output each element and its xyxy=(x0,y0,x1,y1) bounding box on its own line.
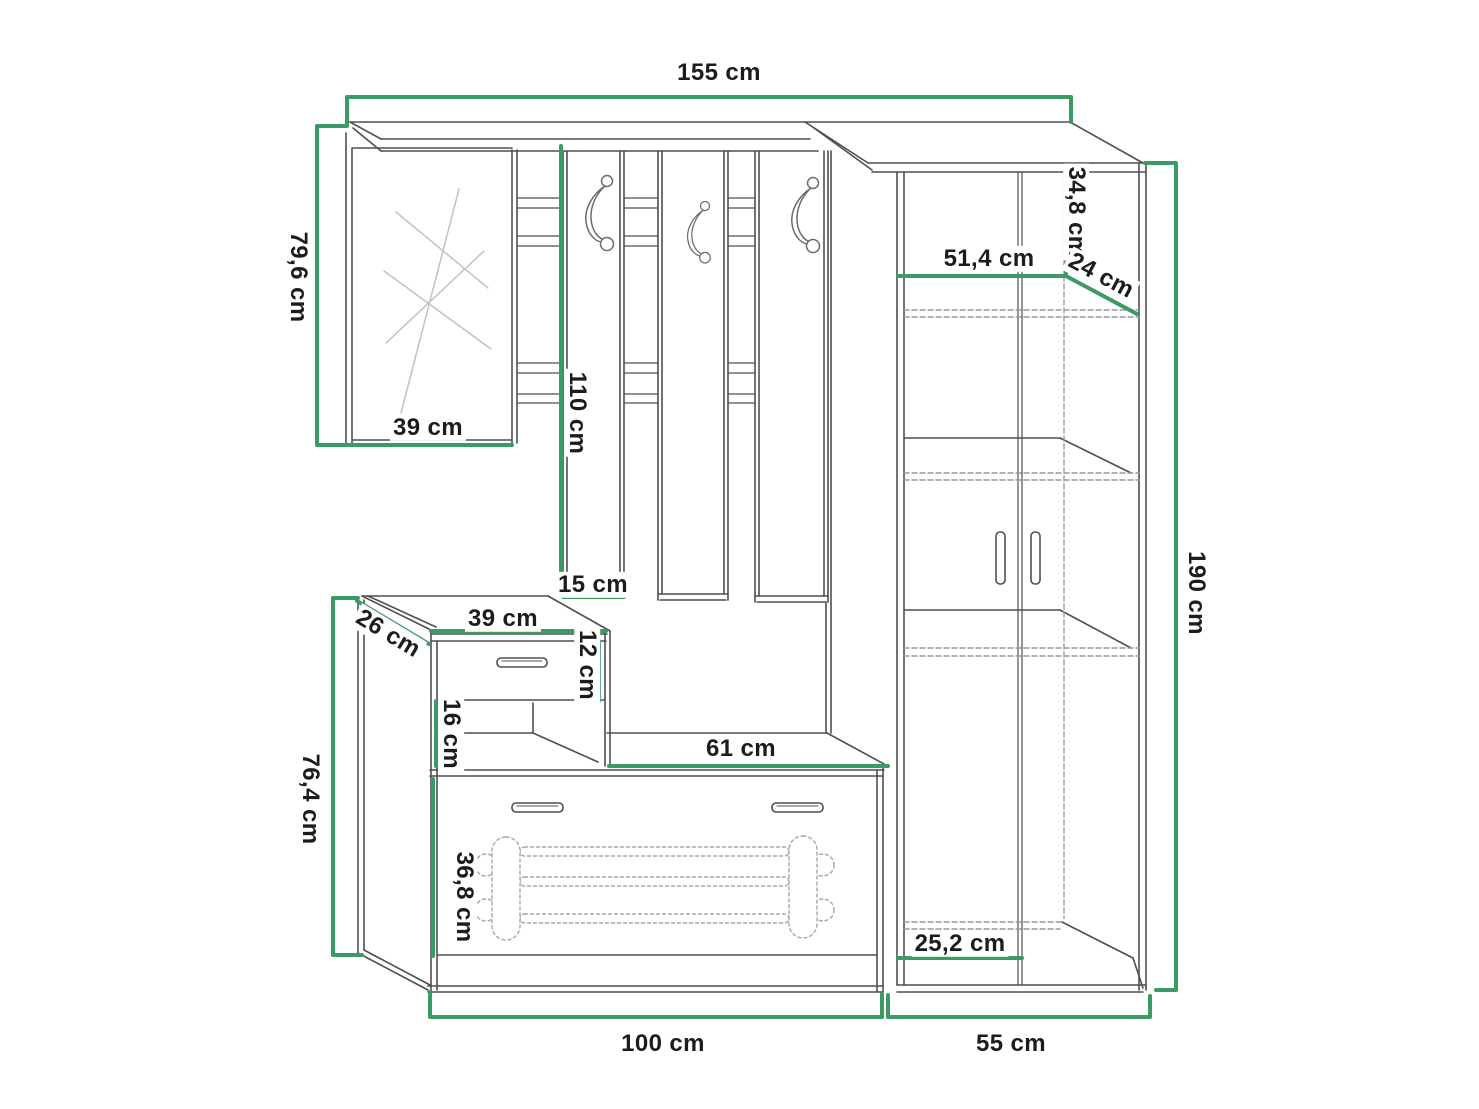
rail-grid xyxy=(517,198,755,403)
flap-handle-left xyxy=(512,803,563,812)
dim-label-cabinet-inner-width: 51,4 cm xyxy=(941,246,1038,272)
dim-line-cabinet-width xyxy=(888,995,1150,1017)
furniture-line-art xyxy=(0,0,1479,1109)
dim-label-hook-panel-width: 15 cm xyxy=(555,572,631,598)
dim-label-cabinet-height: 190 cm xyxy=(1183,548,1209,638)
dim-label-bench-top-width: 61 cm xyxy=(703,736,779,762)
furniture-dimension-diagram: 155 cm 79,6 cm 39 cm 110 cm 15 cm 34,8 c… xyxy=(0,0,1479,1109)
dim-label-box-width: 39 cm xyxy=(465,606,541,632)
dim-line-bench-width xyxy=(430,992,882,1017)
dim-line-total-width xyxy=(347,97,1071,124)
coat-hook-3 xyxy=(792,178,820,253)
mirror-glass-hatch xyxy=(384,189,491,413)
mirror-panel xyxy=(346,133,517,445)
dim-label-bench-width: 100 cm xyxy=(618,1031,708,1057)
drawer-handle xyxy=(497,658,547,667)
dim-label-flap-height: 36,8 cm xyxy=(451,849,477,946)
dim-label-upper-left-height: 79,6 cm xyxy=(285,229,311,326)
dim-label-bench-height: 76,4 cm xyxy=(297,751,323,848)
shoe-rack xyxy=(475,836,834,940)
dim-label-hook-panel-height: 110 cm xyxy=(564,369,590,457)
dim-line-cabinet-height xyxy=(1145,163,1176,990)
dim-label-mirror-width: 39 cm xyxy=(390,415,466,441)
dim-label-open-shelf-height: 16 cm xyxy=(438,696,464,772)
dim-label-total-width: 155 cm xyxy=(674,60,764,86)
dim-label-drawer-height: 12 cm xyxy=(574,627,600,703)
dim-label-cabinet-width: 55 cm xyxy=(973,1031,1049,1057)
coat-hook-2 xyxy=(688,201,711,262)
flap-handle-right xyxy=(772,803,823,812)
coat-hook-1 xyxy=(586,176,614,251)
hook-panel-b xyxy=(658,151,728,600)
top-board xyxy=(350,122,1146,172)
dim-label-bottom-shelf-depth: 25,2 cm xyxy=(912,931,1009,957)
